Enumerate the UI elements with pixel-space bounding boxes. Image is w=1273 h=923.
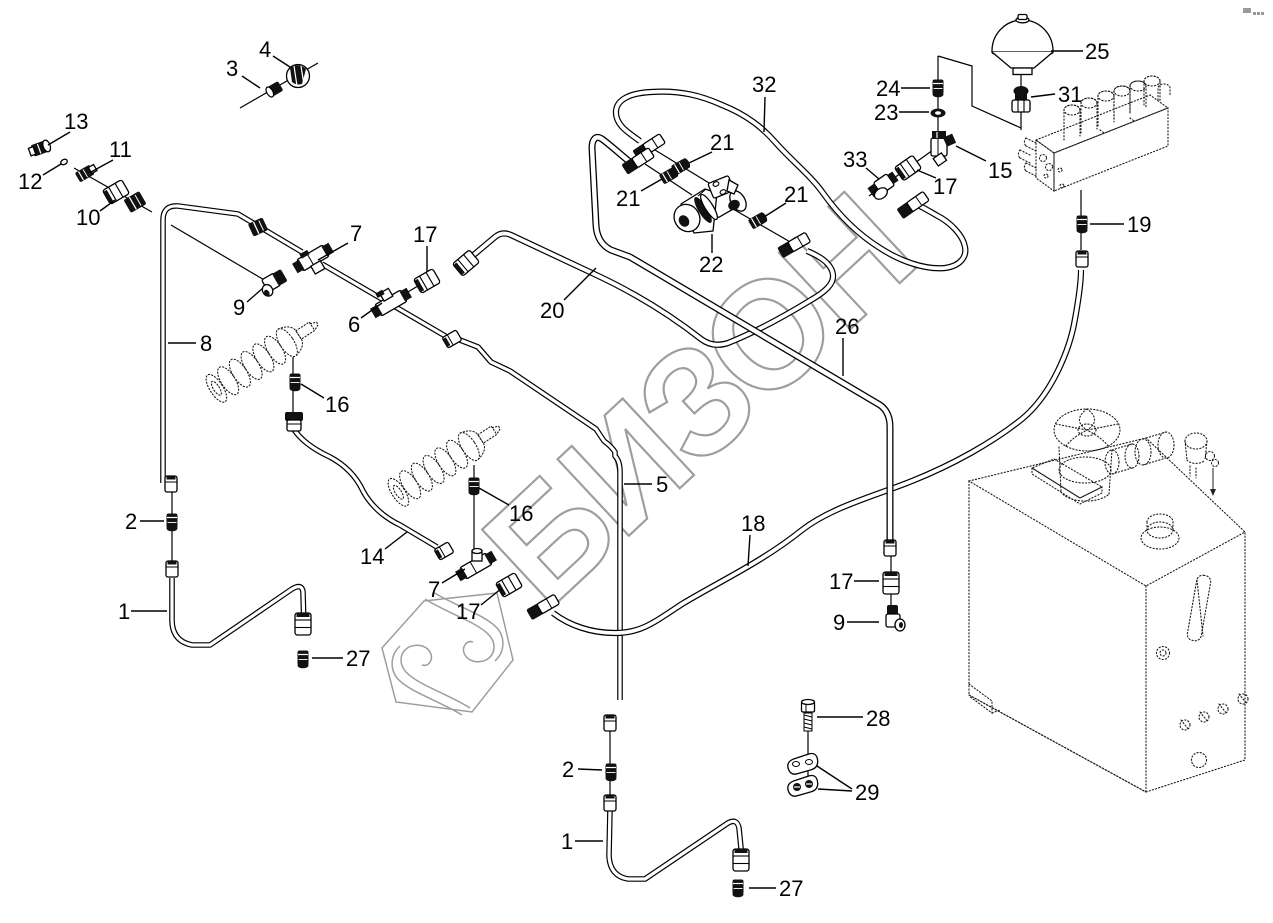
svg-text:29: 29	[855, 780, 879, 805]
svg-text:23: 23	[874, 100, 898, 125]
svg-text:1: 1	[561, 829, 573, 854]
svg-text:18: 18	[741, 511, 765, 536]
svg-text:16: 16	[325, 392, 349, 417]
svg-text:20: 20	[540, 298, 564, 323]
svg-text:7: 7	[428, 577, 440, 602]
svg-text:13: 13	[64, 109, 88, 134]
svg-text:25: 25	[1085, 39, 1109, 64]
svg-text:28: 28	[866, 706, 890, 731]
svg-text:14: 14	[360, 544, 384, 569]
svg-text:32: 32	[752, 72, 776, 97]
svg-text:9: 9	[833, 610, 845, 635]
svg-text:7: 7	[350, 221, 362, 246]
svg-text:24: 24	[876, 76, 900, 101]
svg-text:15: 15	[988, 158, 1012, 183]
svg-text:33: 33	[843, 147, 867, 172]
svg-text:19: 19	[1127, 212, 1151, 237]
svg-text:9: 9	[233, 295, 245, 320]
svg-text:11: 11	[109, 137, 132, 162]
svg-text:17: 17	[456, 599, 480, 624]
svg-text:3: 3	[226, 56, 238, 81]
svg-text:27: 27	[779, 876, 803, 901]
svg-text:17: 17	[933, 174, 957, 199]
svg-text:21: 21	[616, 186, 640, 211]
svg-text:17: 17	[413, 222, 437, 247]
svg-text:31: 31	[1058, 82, 1082, 107]
svg-text:5: 5	[656, 472, 668, 497]
svg-text:12: 12	[18, 169, 42, 194]
svg-text:16: 16	[509, 501, 533, 526]
svg-text:2: 2	[125, 509, 137, 534]
svg-text:4: 4	[259, 37, 271, 62]
svg-text:6: 6	[348, 312, 360, 337]
svg-text:22: 22	[699, 252, 723, 277]
svg-text:8: 8	[200, 331, 212, 356]
svg-text:2: 2	[562, 757, 574, 782]
svg-text:17: 17	[829, 569, 853, 594]
svg-text:21: 21	[710, 130, 734, 155]
svg-text:26: 26	[835, 314, 859, 339]
svg-text:21: 21	[784, 182, 808, 207]
svg-text:27: 27	[346, 646, 370, 671]
svg-text:1: 1	[118, 599, 130, 624]
svg-text:10: 10	[76, 205, 100, 230]
